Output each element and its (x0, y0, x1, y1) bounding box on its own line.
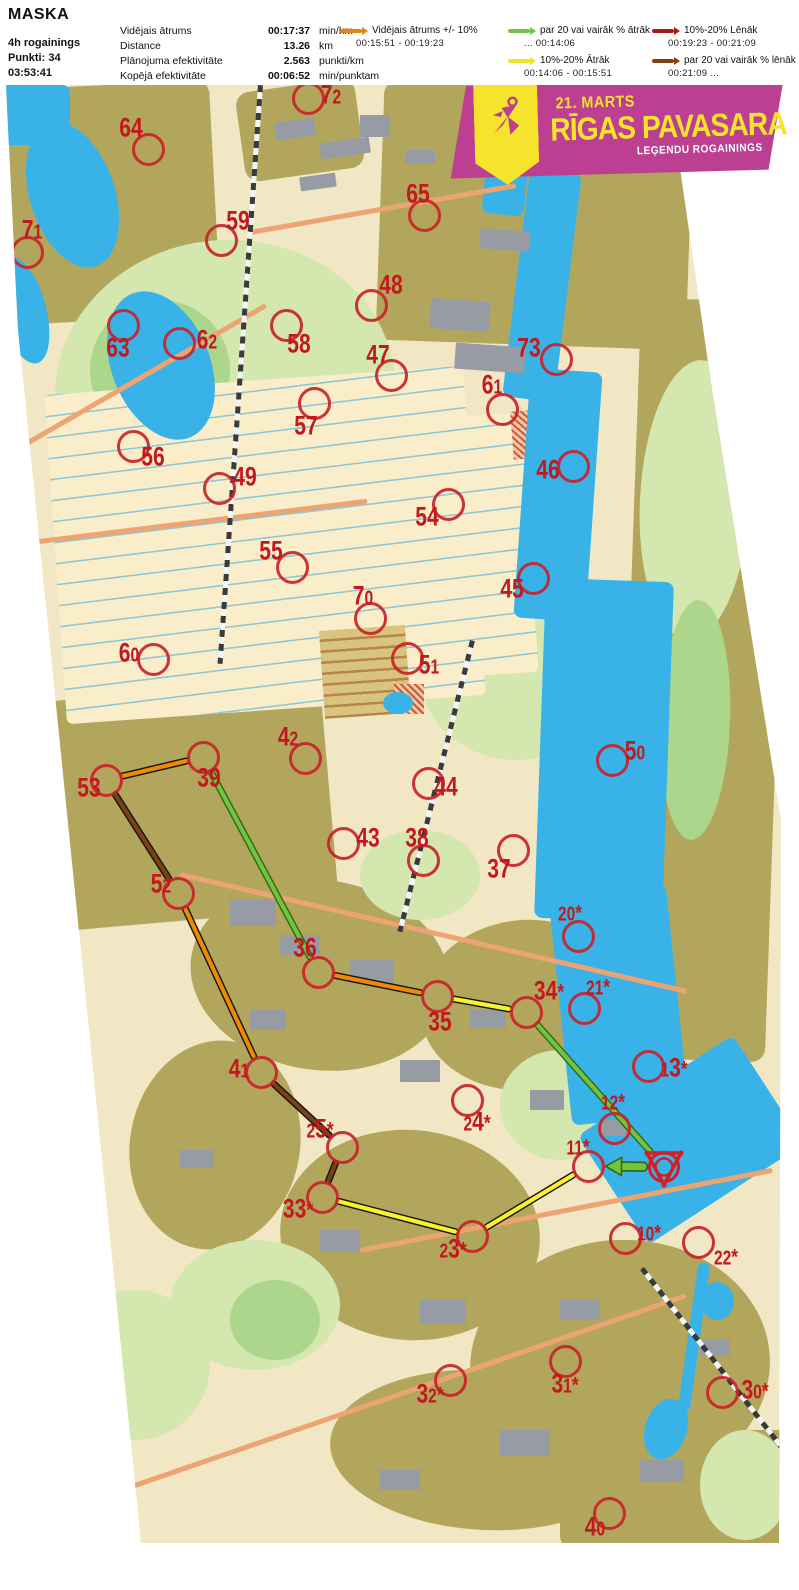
control-label-48: 48 (379, 272, 402, 299)
control-label-57: 57 (294, 413, 317, 440)
rogaining-results-page: MASKA 4h rogainingsPunkti: 3403:53:41 Vi… (0, 0, 799, 1590)
control-label-42: 42 (278, 724, 298, 751)
pennant-logo (473, 82, 540, 186)
control-label-36: 36 (293, 935, 316, 962)
control-label-63: 63 (106, 335, 129, 362)
legend-arrow-icon (674, 27, 680, 35)
stat-row-3: Kopējā efektivitāte00:06:52min/punktam (120, 69, 379, 84)
control-label-24: 24* (463, 1109, 490, 1136)
control-label-62: 62 (197, 327, 217, 354)
control-label-43: 43 (356, 825, 379, 852)
control-circle-72 (292, 82, 325, 115)
control-circle-46 (557, 450, 590, 483)
control-label-33: 33* (283, 1196, 313, 1223)
control-label-55: 55 (259, 538, 282, 565)
control-circle-43 (327, 827, 360, 860)
control-label-61: 61 (482, 372, 502, 399)
control-label-47: 47 (366, 342, 389, 369)
runner-icon (485, 94, 526, 139)
legend-swatch-slow10 (652, 29, 674, 33)
controls-layer: 7264657159486362584773615756464954554570… (0, 0, 799, 1590)
control-label-73: 73 (517, 335, 540, 362)
legend-column-2: par 20 vai vairāk % ātrāk... 00:14:0610%… (508, 24, 650, 84)
event-info-line-2: 03:53:41 (8, 66, 80, 81)
control-label-12: 12* (601, 1088, 625, 1115)
control-label-49: 49 (233, 464, 256, 491)
control-label-23: 23* (439, 1236, 466, 1263)
control-label-65: 65 (406, 181, 429, 208)
control-label-45: 45 (500, 576, 523, 603)
legend-column-3: 10%-20% Lēnāk00:19:23 - 00:21:09par 20 v… (652, 24, 796, 84)
legend-swatch-fast20 (508, 29, 530, 33)
stat-row-2: Plānojuma efektivitāte2.563punkti/km (120, 54, 379, 69)
control-label-35: 35 (428, 1009, 451, 1036)
control-label-51: 51 (419, 652, 439, 679)
control-label-31: 31* (551, 1371, 578, 1398)
legend-column-1: Vidējais ātrums +/- 10%00:15:51 - 00:19:… (340, 24, 478, 54)
banner-subtitle: LEĢENDU ROGAININGS (637, 142, 763, 158)
control-label-46: 46 (536, 457, 559, 484)
legend-entry-fast20: par 20 vai vairāk % ātrāk... 00:14:06 (508, 24, 650, 49)
event-info: 4h rogainingsPunkti: 3403:53:41 (8, 36, 80, 81)
control-circle-49 (203, 472, 236, 505)
control-label-54: 54 (415, 504, 438, 531)
legend-arrow-icon (530, 57, 536, 65)
legend-entry-slow10: 10%-20% Lēnāk00:19:23 - 00:21:09 (652, 24, 796, 49)
control-label-44: 44 (434, 774, 457, 801)
control-circle-12 (598, 1112, 631, 1145)
legend-swatch-fast10 (508, 59, 530, 63)
control-label-37: 37 (487, 856, 510, 883)
control-label-10: 10* (637, 1219, 661, 1246)
control-label-52: 52 (151, 871, 171, 898)
control-label-72: 72 (321, 82, 341, 109)
control-label-56: 56 (141, 444, 164, 471)
control-label-60: 60 (119, 640, 139, 667)
legend-swatch-slow20 (652, 59, 674, 63)
control-label-50: 50 (625, 738, 645, 765)
control-label-64: 64 (119, 115, 142, 142)
control-label-11: 11* (566, 1133, 589, 1160)
legend-arrow-icon (362, 27, 368, 35)
control-label-32: 32* (416, 1381, 443, 1408)
control-label-13: 13* (660, 1055, 687, 1082)
control-circle-60 (137, 643, 170, 676)
control-label-34: 34* (534, 978, 564, 1005)
control-label-53: 53 (77, 775, 100, 802)
control-label-21: 21* (586, 973, 610, 1000)
runner-name: MASKA (8, 6, 69, 24)
control-label-25: 25* (306, 1116, 333, 1143)
control-circle-22 (682, 1226, 715, 1259)
legend-entry-avg: Vidējais ātrums +/- 10%00:15:51 - 00:19:… (340, 24, 478, 49)
control-label-40: 40 (585, 1514, 605, 1541)
control-circle-41 (245, 1056, 278, 1089)
map-sheet: 7264657159486362584773615756464954554570… (0, 0, 799, 1590)
header: MASKA 4h rogainingsPunkti: 3403:53:41 Vi… (0, 0, 799, 85)
control-label-59: 59 (226, 208, 249, 235)
control-label-71: 71 (22, 217, 42, 244)
control-circle-30 (706, 1376, 739, 1409)
control-label-39: 39 (197, 765, 220, 792)
control-circle-62 (163, 327, 196, 360)
control-label-41: 41 (229, 1056, 249, 1083)
control-label-30: 30* (741, 1377, 768, 1404)
legend-entry-slow20: par 20 vai vairāk % lēnāk00:21:09 ... (652, 54, 796, 79)
control-label-20: 20* (558, 899, 582, 926)
control-label-58: 58 (287, 331, 310, 358)
event-info-line-0: 4h rogainings (8, 36, 80, 51)
control-label-38: 38 (405, 825, 428, 852)
legend-arrow-icon (674, 57, 680, 65)
control-label-22: 22* (714, 1243, 738, 1270)
control-circle-50 (596, 744, 629, 777)
legend-entry-fast10: 10%-20% Ātrāk00:14:06 - 00:15:51 (508, 54, 650, 79)
legend-swatch-avg (340, 29, 362, 33)
control-label-70: 70 (353, 583, 373, 610)
control-circle-73 (540, 343, 573, 376)
legend-arrow-icon (530, 27, 536, 35)
event-banner: 21. MARTS RĪGAS PAVASARA LEĢENDU ROGAINI… (451, 77, 784, 178)
event-info-line-1: Punkti: 34 (8, 51, 80, 66)
